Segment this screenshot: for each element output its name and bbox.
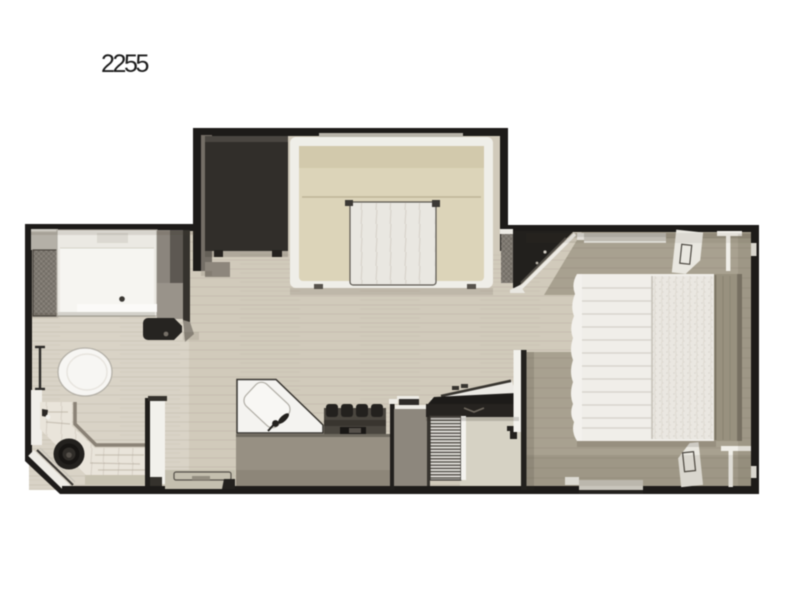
svg-text:2255: 2255 — [101, 50, 149, 78]
